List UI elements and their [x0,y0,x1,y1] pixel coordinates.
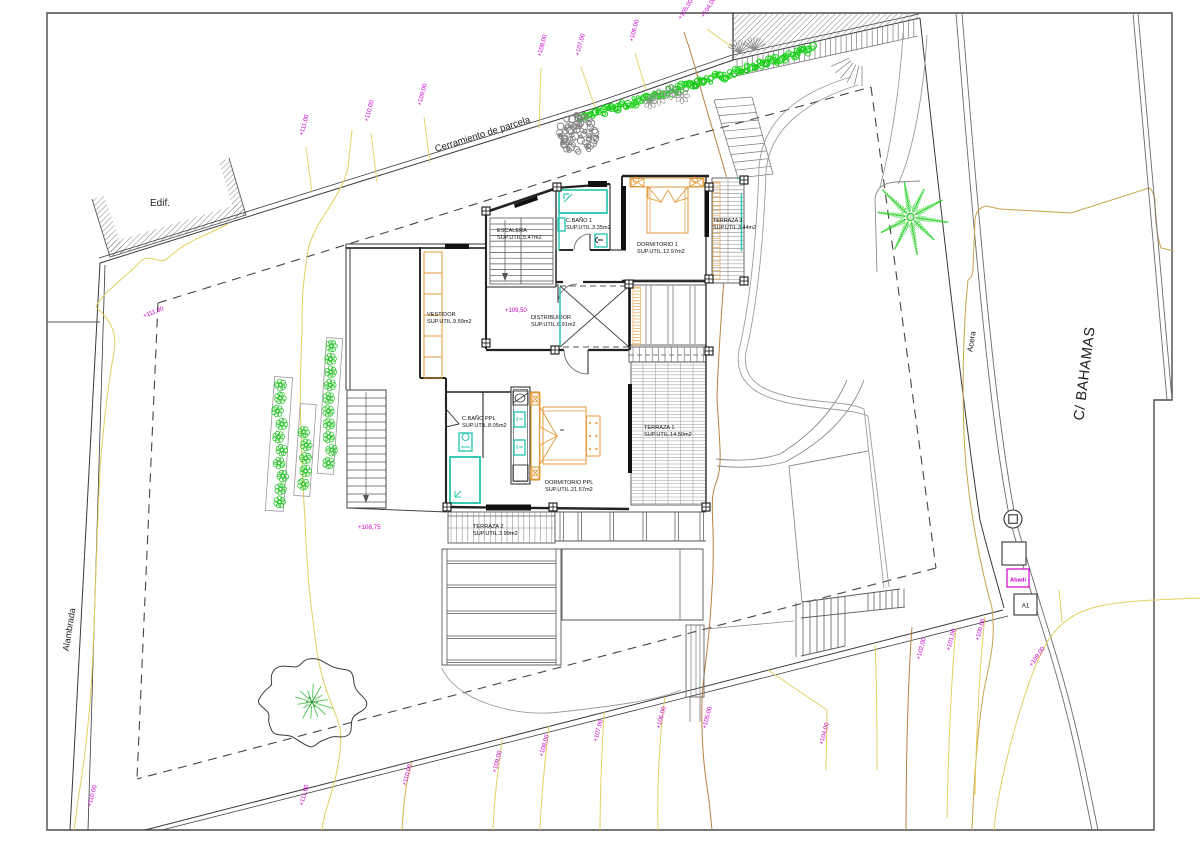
svg-text:SUP.UTIL.12.97m2: SUP.UTIL.12.97m2 [637,249,685,255]
svg-text:SUP.UTIL.3.35m2: SUP.UTIL.3.35m2 [566,225,611,231]
svg-text:SUP.UTIL.21.57m2: SUP.UTIL.21.57m2 [545,487,593,493]
svg-text:TERRAZA 3: TERRAZA 3 [713,218,742,224]
svg-text:DORMITORIO 1: DORMITORIO 1 [637,242,678,248]
svg-text:SUP.UTIL.8.05m2: SUP.UTIL.8.05m2 [462,423,507,429]
svg-text:SUP.UTIL.9.59m2: SUP.UTIL.9.59m2 [427,319,472,325]
svg-text:SUP.UTIL.3.99m2: SUP.UTIL.3.99m2 [473,531,518,537]
svg-text:C.BAÑO PPL: C.BAÑO PPL [462,415,496,422]
svg-text:SUP.UTIL.6.91m2: SUP.UTIL.6.91m2 [531,322,576,328]
svg-text:A1: A1 [1022,603,1030,610]
svg-text:TERRAZA 1: TERRAZA 1 [644,425,674,431]
svg-text:+108,75: +108,75 [358,524,381,531]
svg-text:Edif.: Edif. [150,198,170,209]
svg-text:C.BAÑO 1: C.BAÑO 1 [566,217,592,224]
svg-text:Abadi: Abadi [1010,578,1026,584]
svg-text:+109,50: +109,50 [505,308,528,314]
svg-text:SUP.UTIL.14.50m2: SUP.UTIL.14.50m2 [644,432,692,438]
svg-text:DORMITORIO PPL: DORMITORIO PPL [545,480,593,486]
svg-text:SUP.UTIL.3.44m2: SUP.UTIL.3.44m2 [713,225,756,231]
svg-text:VESTIDOR: VESTIDOR [427,312,456,318]
svg-text:ESCALERA: ESCALERA [497,228,527,234]
svg-text:SUP.UTIL.5.47m2: SUP.UTIL.5.47m2 [497,235,542,241]
svg-text:TERRAZA 2: TERRAZA 2 [473,524,503,530]
svg-text:DISTRIBUIDOR: DISTRIBUIDOR [531,315,571,321]
